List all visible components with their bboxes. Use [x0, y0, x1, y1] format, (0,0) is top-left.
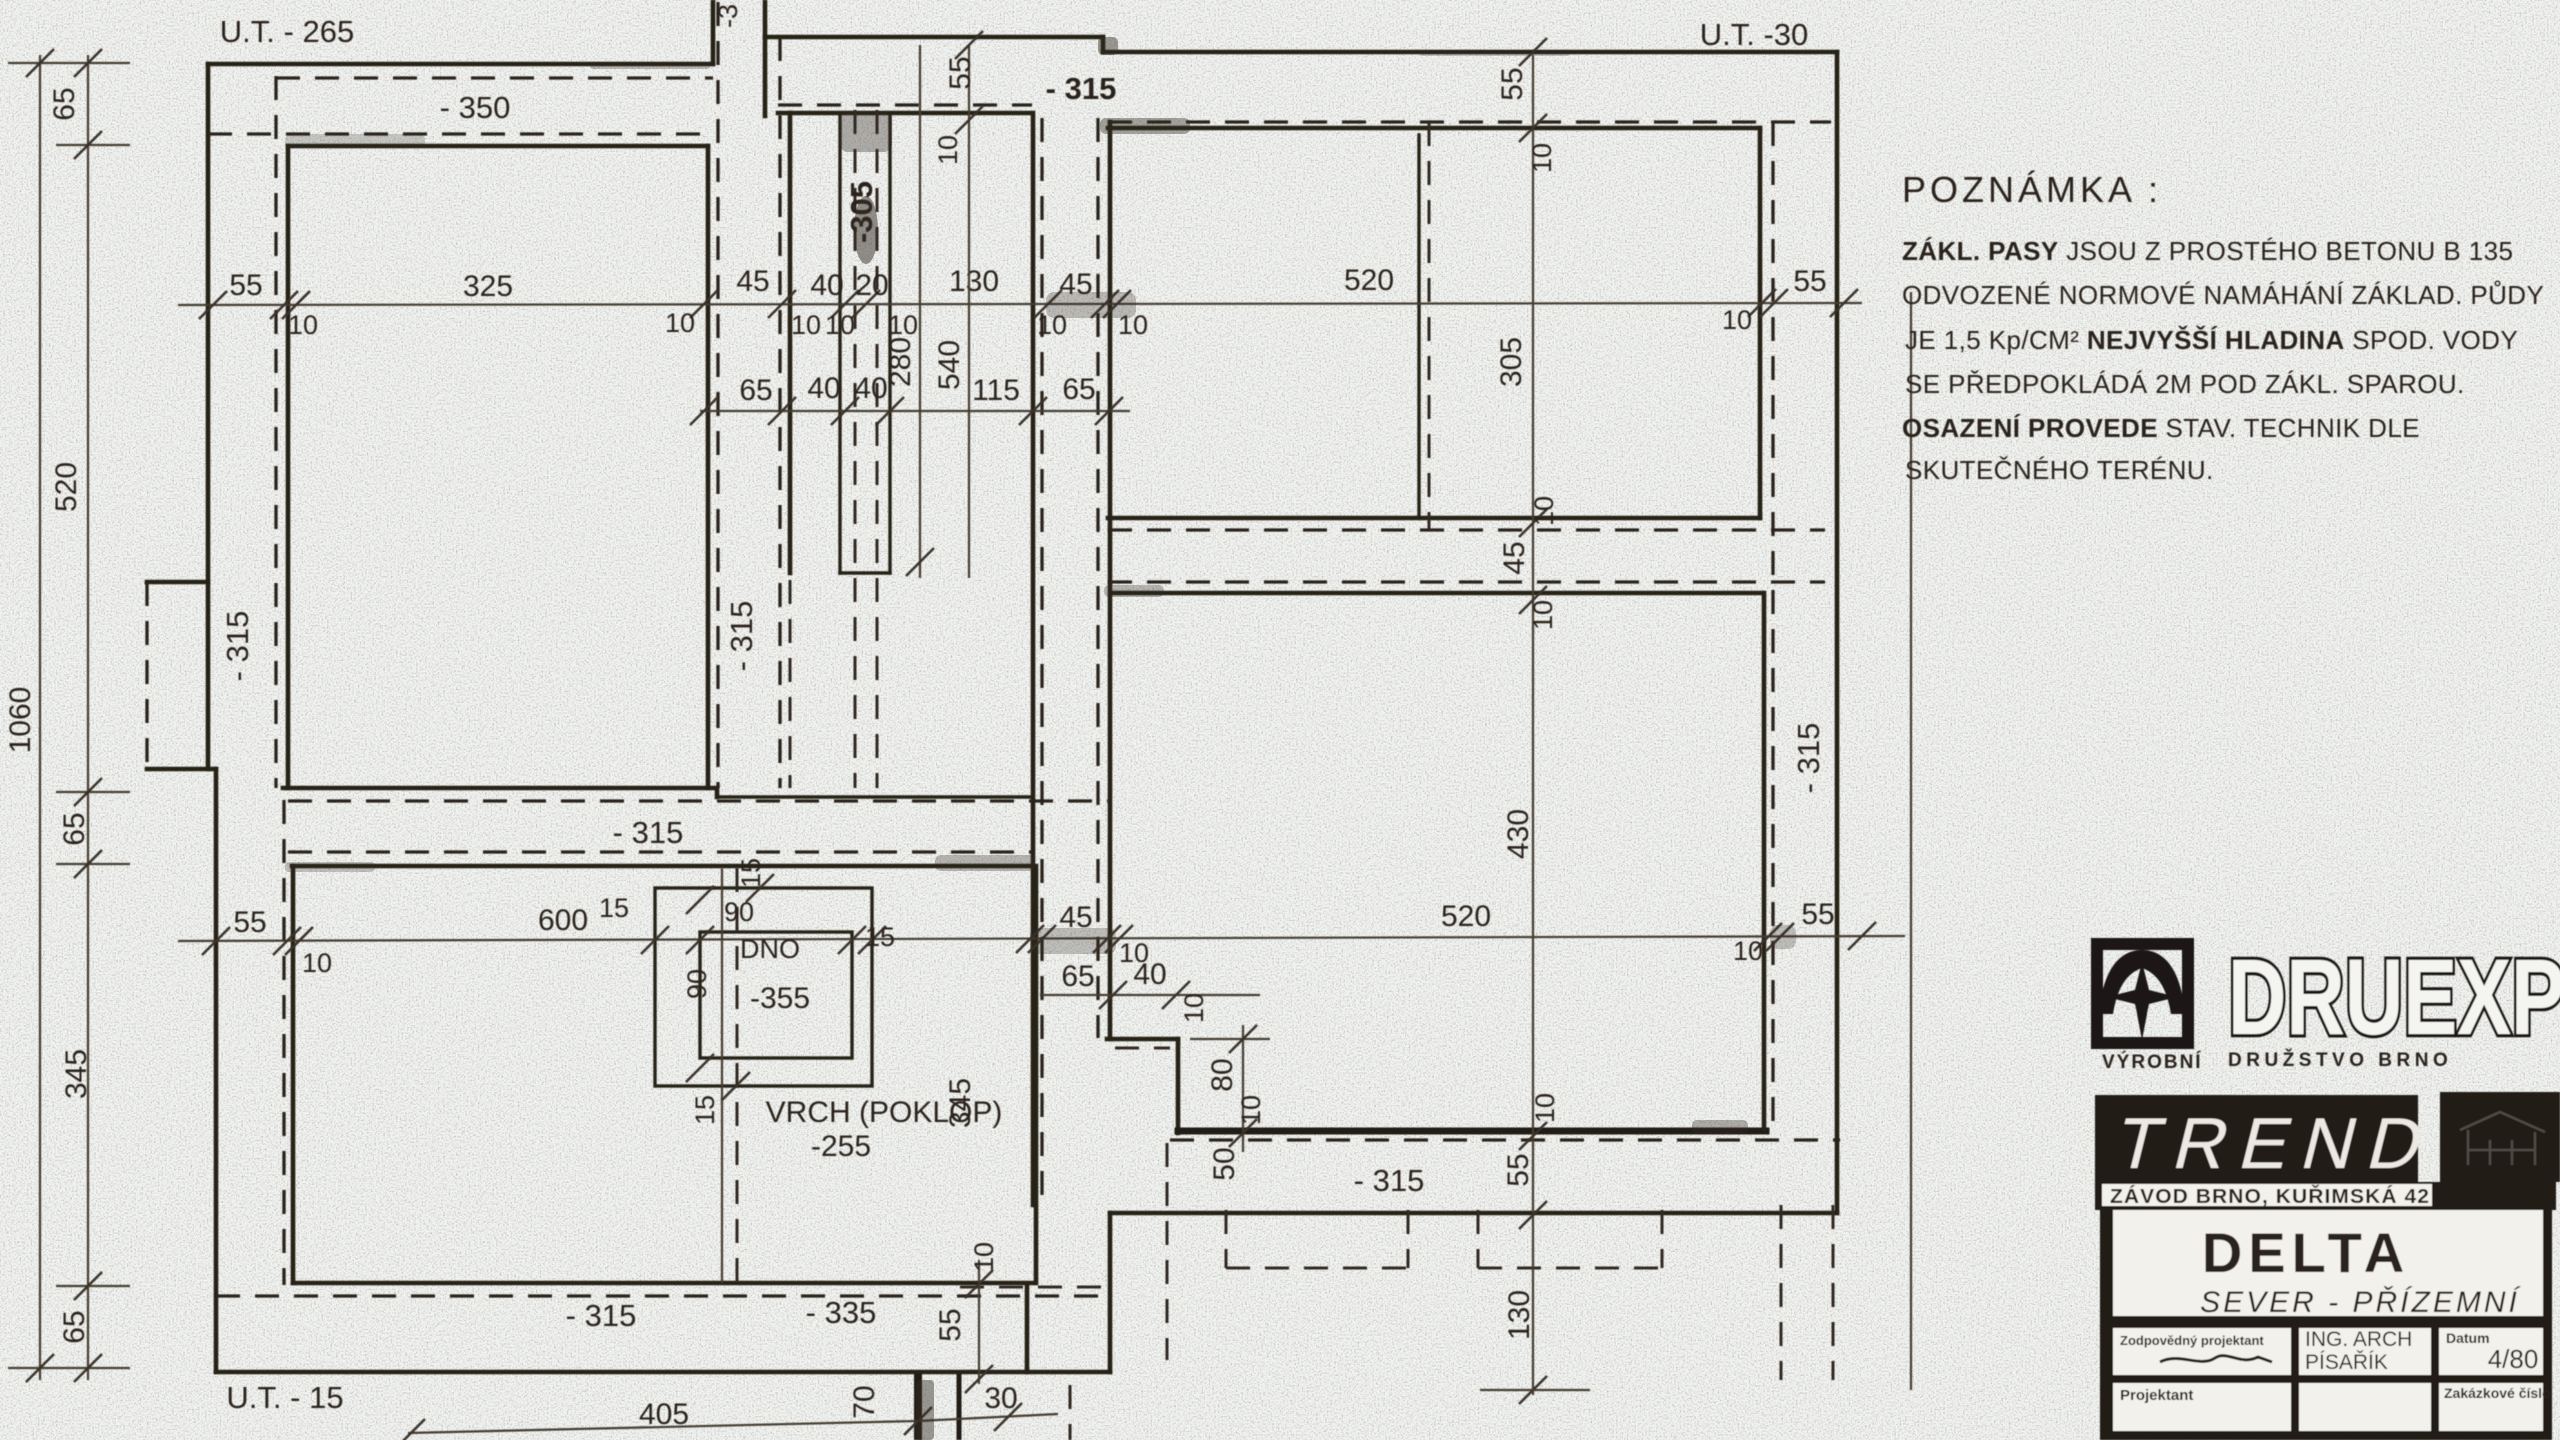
svg-text:305: 305 [1495, 337, 1528, 387]
svg-text:40: 40 [854, 372, 887, 405]
svg-text:10: 10 [1236, 1095, 1266, 1125]
svg-text:65: 65 [58, 812, 91, 845]
svg-text:65: 65 [1061, 960, 1094, 993]
svg-text:U.T. - 15: U.T. - 15 [226, 1380, 343, 1415]
svg-text:Datum: Datum [2446, 1330, 2490, 1346]
svg-text:20: 20 [855, 269, 888, 302]
svg-text:ING. ARCH: ING. ARCH [2305, 1328, 2412, 1351]
svg-text:10: 10 [1527, 143, 1557, 173]
svg-text:40: 40 [1133, 958, 1166, 991]
svg-text:130: 130 [1503, 1290, 1536, 1340]
svg-text:10: 10 [933, 135, 963, 165]
svg-text:DELTA: DELTA [2202, 1221, 2410, 1284]
svg-text:- 315: - 315 [613, 815, 684, 850]
svg-text:- 335: - 335 [806, 1295, 877, 1330]
svg-text:520: 520 [1344, 264, 1394, 297]
svg-text:- 315: - 315 [724, 601, 759, 672]
svg-text:SEVER - PŘÍZEMNÍ: SEVER - PŘÍZEMNÍ [2200, 1286, 2521, 1319]
svg-text:POZNÁMKA :: POZNÁMKA : [1902, 169, 2162, 210]
svg-text:10: 10 [1530, 1093, 1560, 1123]
svg-text:65: 65 [58, 1310, 91, 1343]
svg-text:10: 10 [825, 310, 855, 340]
svg-text:45: 45 [1498, 541, 1531, 574]
svg-text:30: 30 [984, 1382, 1017, 1415]
svg-text:- 315: - 315 [1354, 1163, 1425, 1198]
svg-text:55: 55 [1502, 1153, 1535, 1186]
svg-text:540: 540 [933, 340, 966, 390]
svg-text:45: 45 [736, 265, 769, 298]
svg-text:520: 520 [50, 462, 83, 512]
svg-text:10: 10 [1529, 496, 1559, 526]
svg-text:ZÁKL. PASY JSOU Z PROSTÉHO BET: ZÁKL. PASY JSOU Z PROSTÉHO BETONU B 135 [1902, 236, 2513, 266]
svg-text:10: 10 [302, 948, 332, 978]
svg-text:600: 600 [538, 904, 588, 937]
svg-text:15: 15 [865, 922, 895, 952]
svg-text:55: 55 [1793, 265, 1826, 298]
svg-text:520: 520 [1441, 900, 1491, 933]
svg-text:10: 10 [1179, 993, 1209, 1023]
svg-text:40: 40 [807, 372, 840, 405]
svg-text:U.T. - 265: U.T. - 265 [220, 14, 354, 49]
svg-text:- 350: - 350 [440, 90, 511, 125]
svg-text:405: 405 [639, 1398, 689, 1431]
svg-text:Zakázkové číslo: Zakázkové číslo [2444, 1385, 2551, 1401]
svg-text:4/80: 4/80 [2488, 1344, 2539, 1374]
svg-text:65: 65 [48, 87, 81, 120]
svg-text:15: 15 [599, 893, 629, 923]
svg-text:10: 10 [288, 310, 318, 340]
svg-text:55: 55 [944, 56, 977, 89]
svg-text:JE 1,5 Kp/CM² NEJVYŠŠÍ HLADIN: JE 1,5 Kp/CM² NEJVYŠŠÍ HLADINA SPOD. VOD… [1905, 325, 2518, 355]
svg-text:10: 10 [1722, 305, 1752, 335]
svg-text:- 315: - 315 [1791, 723, 1826, 794]
svg-text:-355: -355 [750, 982, 810, 1015]
svg-text:ZÁVOD BRNO, KUŘIMSKÁ 42: ZÁVOD BRNO, KUŘIMSKÁ 42 [2110, 1184, 2430, 1208]
svg-text:OSAZENÍ PROVEDE STAV. TECHNIK: OSAZENÍ PROVEDE STAV. TECHNIK DLE [1902, 413, 2420, 443]
svg-text:10: 10 [888, 310, 918, 340]
svg-text:55: 55 [229, 269, 262, 302]
svg-text:90: 90 [724, 897, 754, 927]
svg-text:65: 65 [739, 374, 772, 407]
svg-text:65: 65 [1062, 373, 1095, 406]
svg-text:10: 10 [969, 1242, 999, 1272]
svg-text:55: 55 [233, 906, 266, 939]
svg-text:SKUTEČNÉHO TERÉNU.: SKUTEČNÉHO TERÉNU. [1905, 455, 2214, 485]
svg-text:345: 345 [60, 1049, 93, 1099]
svg-text:15: 15 [736, 858, 766, 888]
svg-text:55: 55 [934, 1308, 967, 1341]
svg-text:40: 40 [810, 269, 843, 302]
svg-text:- 315: - 315 [566, 1298, 637, 1333]
svg-text:15: 15 [690, 1095, 720, 1125]
svg-text:280: 280 [884, 337, 917, 387]
svg-text:10: 10 [665, 308, 695, 338]
svg-text:SE PŘEDPOKLÁDÁ 2M POD ZÁKL. SP: SE PŘEDPOKLÁDÁ 2M POD ZÁKL. SPAROU. [1905, 369, 2465, 399]
svg-text:TREND: TREND [2108, 1104, 2446, 1184]
svg-text:10: 10 [1733, 936, 1763, 966]
svg-text:130: 130 [949, 265, 999, 298]
svg-text:10: 10 [791, 310, 821, 340]
svg-text:115: 115 [972, 374, 1020, 407]
svg-text:- 315: - 315 [220, 611, 255, 682]
svg-text:50: 50 [1208, 1147, 1241, 1180]
svg-text:55: 55 [1801, 898, 1834, 931]
svg-text:VÝROBNÍ: VÝROBNÍ [2102, 1051, 2203, 1073]
svg-text:90: 90 [682, 969, 712, 999]
svg-text:Zodpovědný projektant: Zodpovědný projektant [2120, 1333, 2264, 1348]
svg-text:70: 70 [848, 1385, 881, 1418]
svg-text:DNO: DNO [740, 934, 800, 964]
svg-text:430: 430 [1502, 809, 1535, 859]
svg-text:U.T. -30: U.T. -30 [1700, 17, 1809, 52]
svg-text:1060: 1060 [4, 687, 37, 754]
svg-text:-3: -3 [713, 4, 743, 28]
svg-text:PÍSAŘÍK: PÍSAŘÍK [2305, 1351, 2388, 1374]
svg-text:DRUEXPO: DRUEXPO [2228, 936, 2560, 1057]
svg-text:Projektant: Projektant [2120, 1387, 2193, 1404]
svg-text:- 315: - 315 [1046, 71, 1117, 106]
svg-text:10: 10 [1528, 600, 1558, 630]
svg-text:DRUŽSTVO BRNO: DRUŽSTVO BRNO [2228, 1049, 2452, 1071]
svg-text:80: 80 [1206, 1058, 1239, 1091]
svg-text:-255: -255 [811, 1130, 871, 1163]
svg-text:55: 55 [1496, 67, 1529, 100]
svg-text:345: 345 [944, 1078, 977, 1128]
svg-text:325: 325 [463, 270, 513, 303]
svg-text:ODVOZENÉ NORMOVÉ NAMÁHÁNÍ ZÁKL: ODVOZENÉ NORMOVÉ NAMÁHÁNÍ ZÁKLAD. PŮDY [1902, 279, 2544, 310]
